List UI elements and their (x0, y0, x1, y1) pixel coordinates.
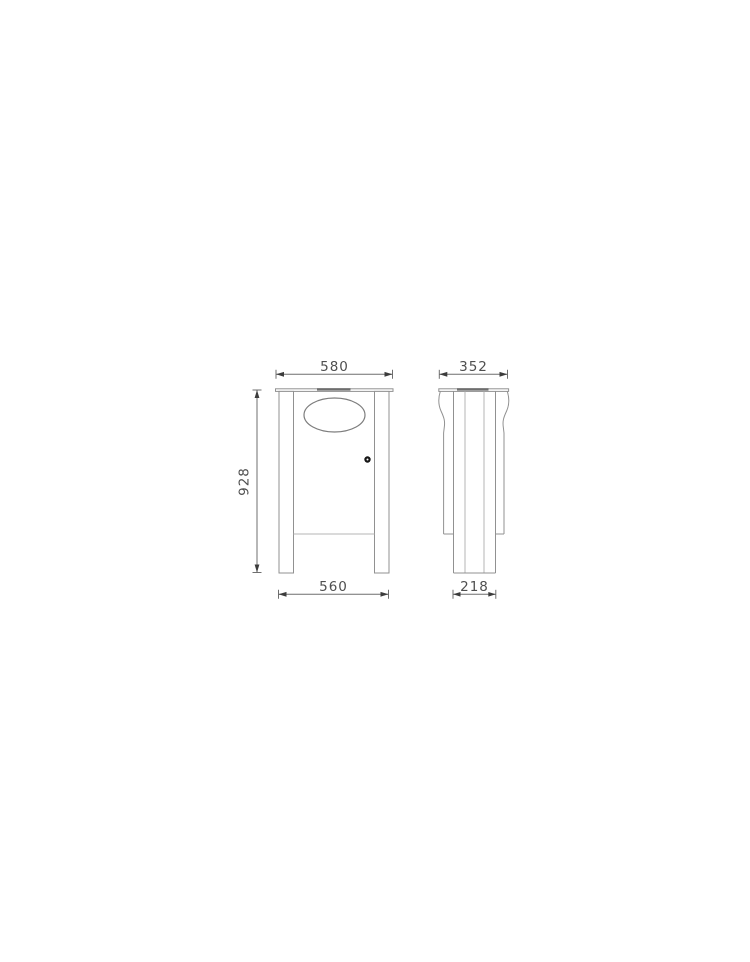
dim-label-top-width: 580 (320, 359, 349, 375)
side-lid-strip (457, 388, 489, 390)
dim-arrow-left (439, 372, 447, 377)
front-view (276, 388, 394, 573)
dim-label-bottom-width: 560 (319, 579, 348, 595)
dim-arrow-bottom (255, 565, 260, 573)
dimension-bottom-depth: 218 (453, 579, 496, 599)
dim-arrow-right (500, 372, 508, 377)
litter-opening (304, 398, 365, 432)
dim-label-bottom-depth: 218 (460, 579, 489, 595)
dim-arrow-right (385, 372, 393, 377)
front-lid-strip (317, 388, 351, 390)
dimension-height: 928 (237, 390, 262, 573)
drawing-page: 580 352 928 560 (0, 0, 750, 962)
dim-label-height: 928 (237, 467, 253, 496)
dim-label-top-depth: 352 (459, 359, 488, 375)
dim-arrow-left (276, 372, 284, 377)
dimension-bottom-width: 560 (279, 579, 389, 599)
front-right-leg (375, 391, 390, 573)
dim-arrow-left (279, 592, 287, 597)
dim-arrow-top (255, 390, 260, 398)
dim-arrow-right (488, 592, 496, 597)
front-left-leg (279, 391, 294, 573)
side-body-right-profile (503, 391, 509, 534)
side-view (439, 388, 509, 573)
dimension-top-width: 580 (276, 359, 393, 379)
technical-drawing: 580 352 928 560 (0, 0, 750, 962)
side-body-left-profile (439, 391, 445, 534)
dim-arrow-right (381, 592, 389, 597)
lock-keyhole (367, 459, 369, 461)
dimension-top-depth: 352 (439, 359, 507, 379)
